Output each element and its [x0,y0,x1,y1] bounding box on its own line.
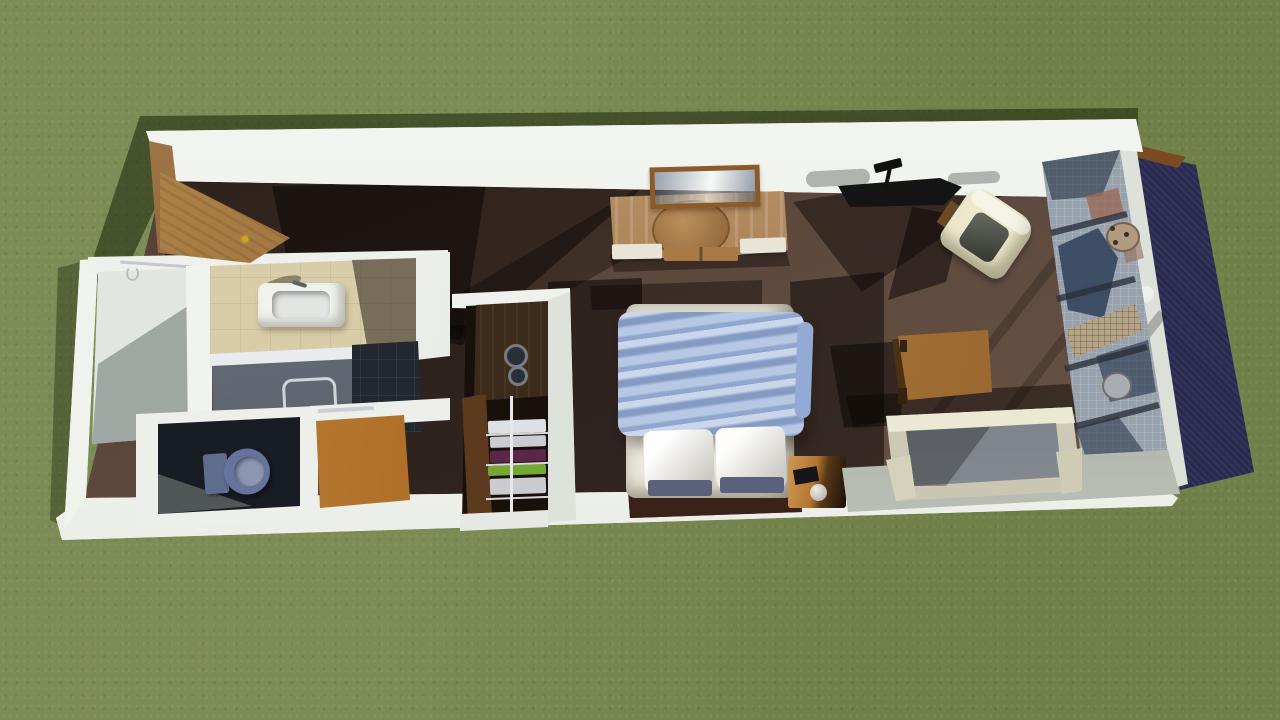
folded-clothes-grey[interactable] [490,477,547,495]
render-scene [0,0,1280,720]
door-knob-icon[interactable] [242,236,248,242]
hanger-icon[interactable] [126,266,139,281]
dial-icon[interactable] [504,344,528,368]
sink-basin[interactable] [272,291,330,319]
folded-clothes-grey[interactable] [490,435,546,448]
pillow-base [720,477,784,493]
mosaic-round-motif [1102,372,1132,400]
duvet-drape [794,322,813,418]
ball-lamp[interactable] [810,484,827,501]
motif-dot [1124,232,1129,237]
folded-clothes-green[interactable] [488,464,546,476]
motif-dot [1110,226,1115,231]
console-drawer[interactable] [740,237,786,254]
wall-picture[interactable] [649,165,760,210]
console-drawer-wood[interactable] [664,247,738,261]
dial-icon[interactable] [508,366,528,386]
folded-clothes-purple[interactable] [490,449,546,463]
console-drawer[interactable] [612,244,662,260]
table-leg [898,388,907,404]
table-leg [900,340,907,352]
shelf-pole [510,396,513,522]
pillow-base [648,480,712,496]
toilet[interactable] [202,442,278,503]
motif-dot [1113,240,1118,245]
duvet[interactable] [618,312,804,436]
